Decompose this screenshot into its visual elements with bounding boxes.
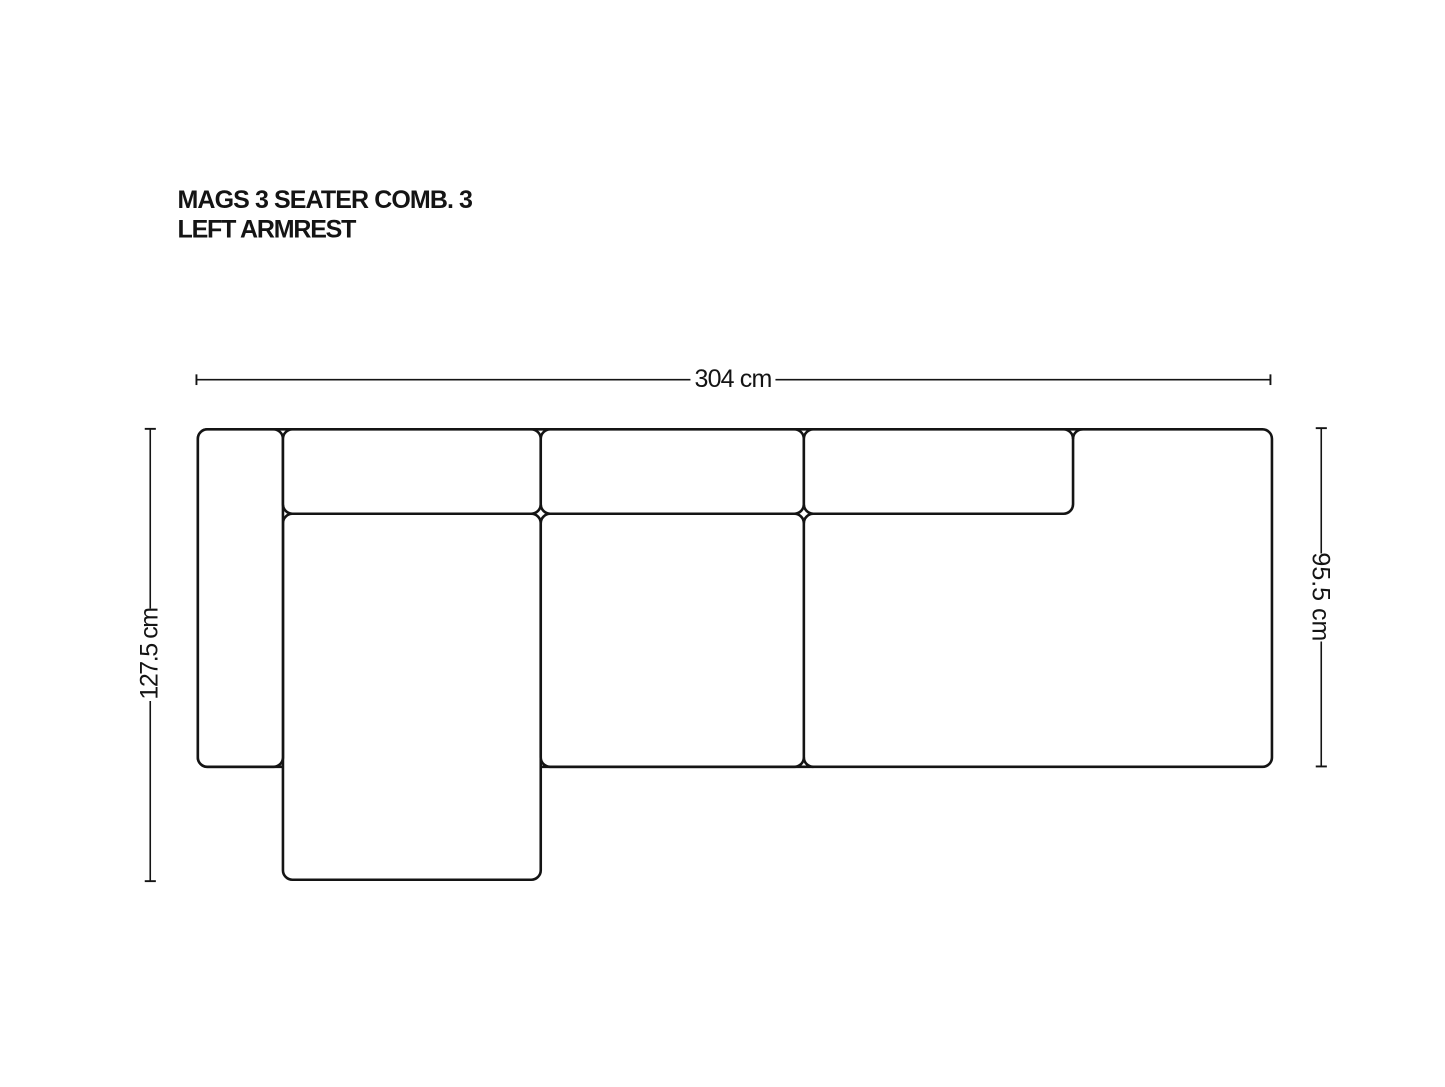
svg-text:LEFT ARMREST: LEFT ARMREST	[178, 216, 357, 244]
svg-text:127.5 cm: 127.5 cm	[136, 608, 164, 700]
svg-text:MAGS 3 SEATER COMB. 3: MAGS 3 SEATER COMB. 3	[178, 186, 473, 214]
svg-text:304 cm: 304 cm	[695, 365, 772, 393]
svg-text:95.5 cm: 95.5 cm	[1306, 552, 1334, 641]
